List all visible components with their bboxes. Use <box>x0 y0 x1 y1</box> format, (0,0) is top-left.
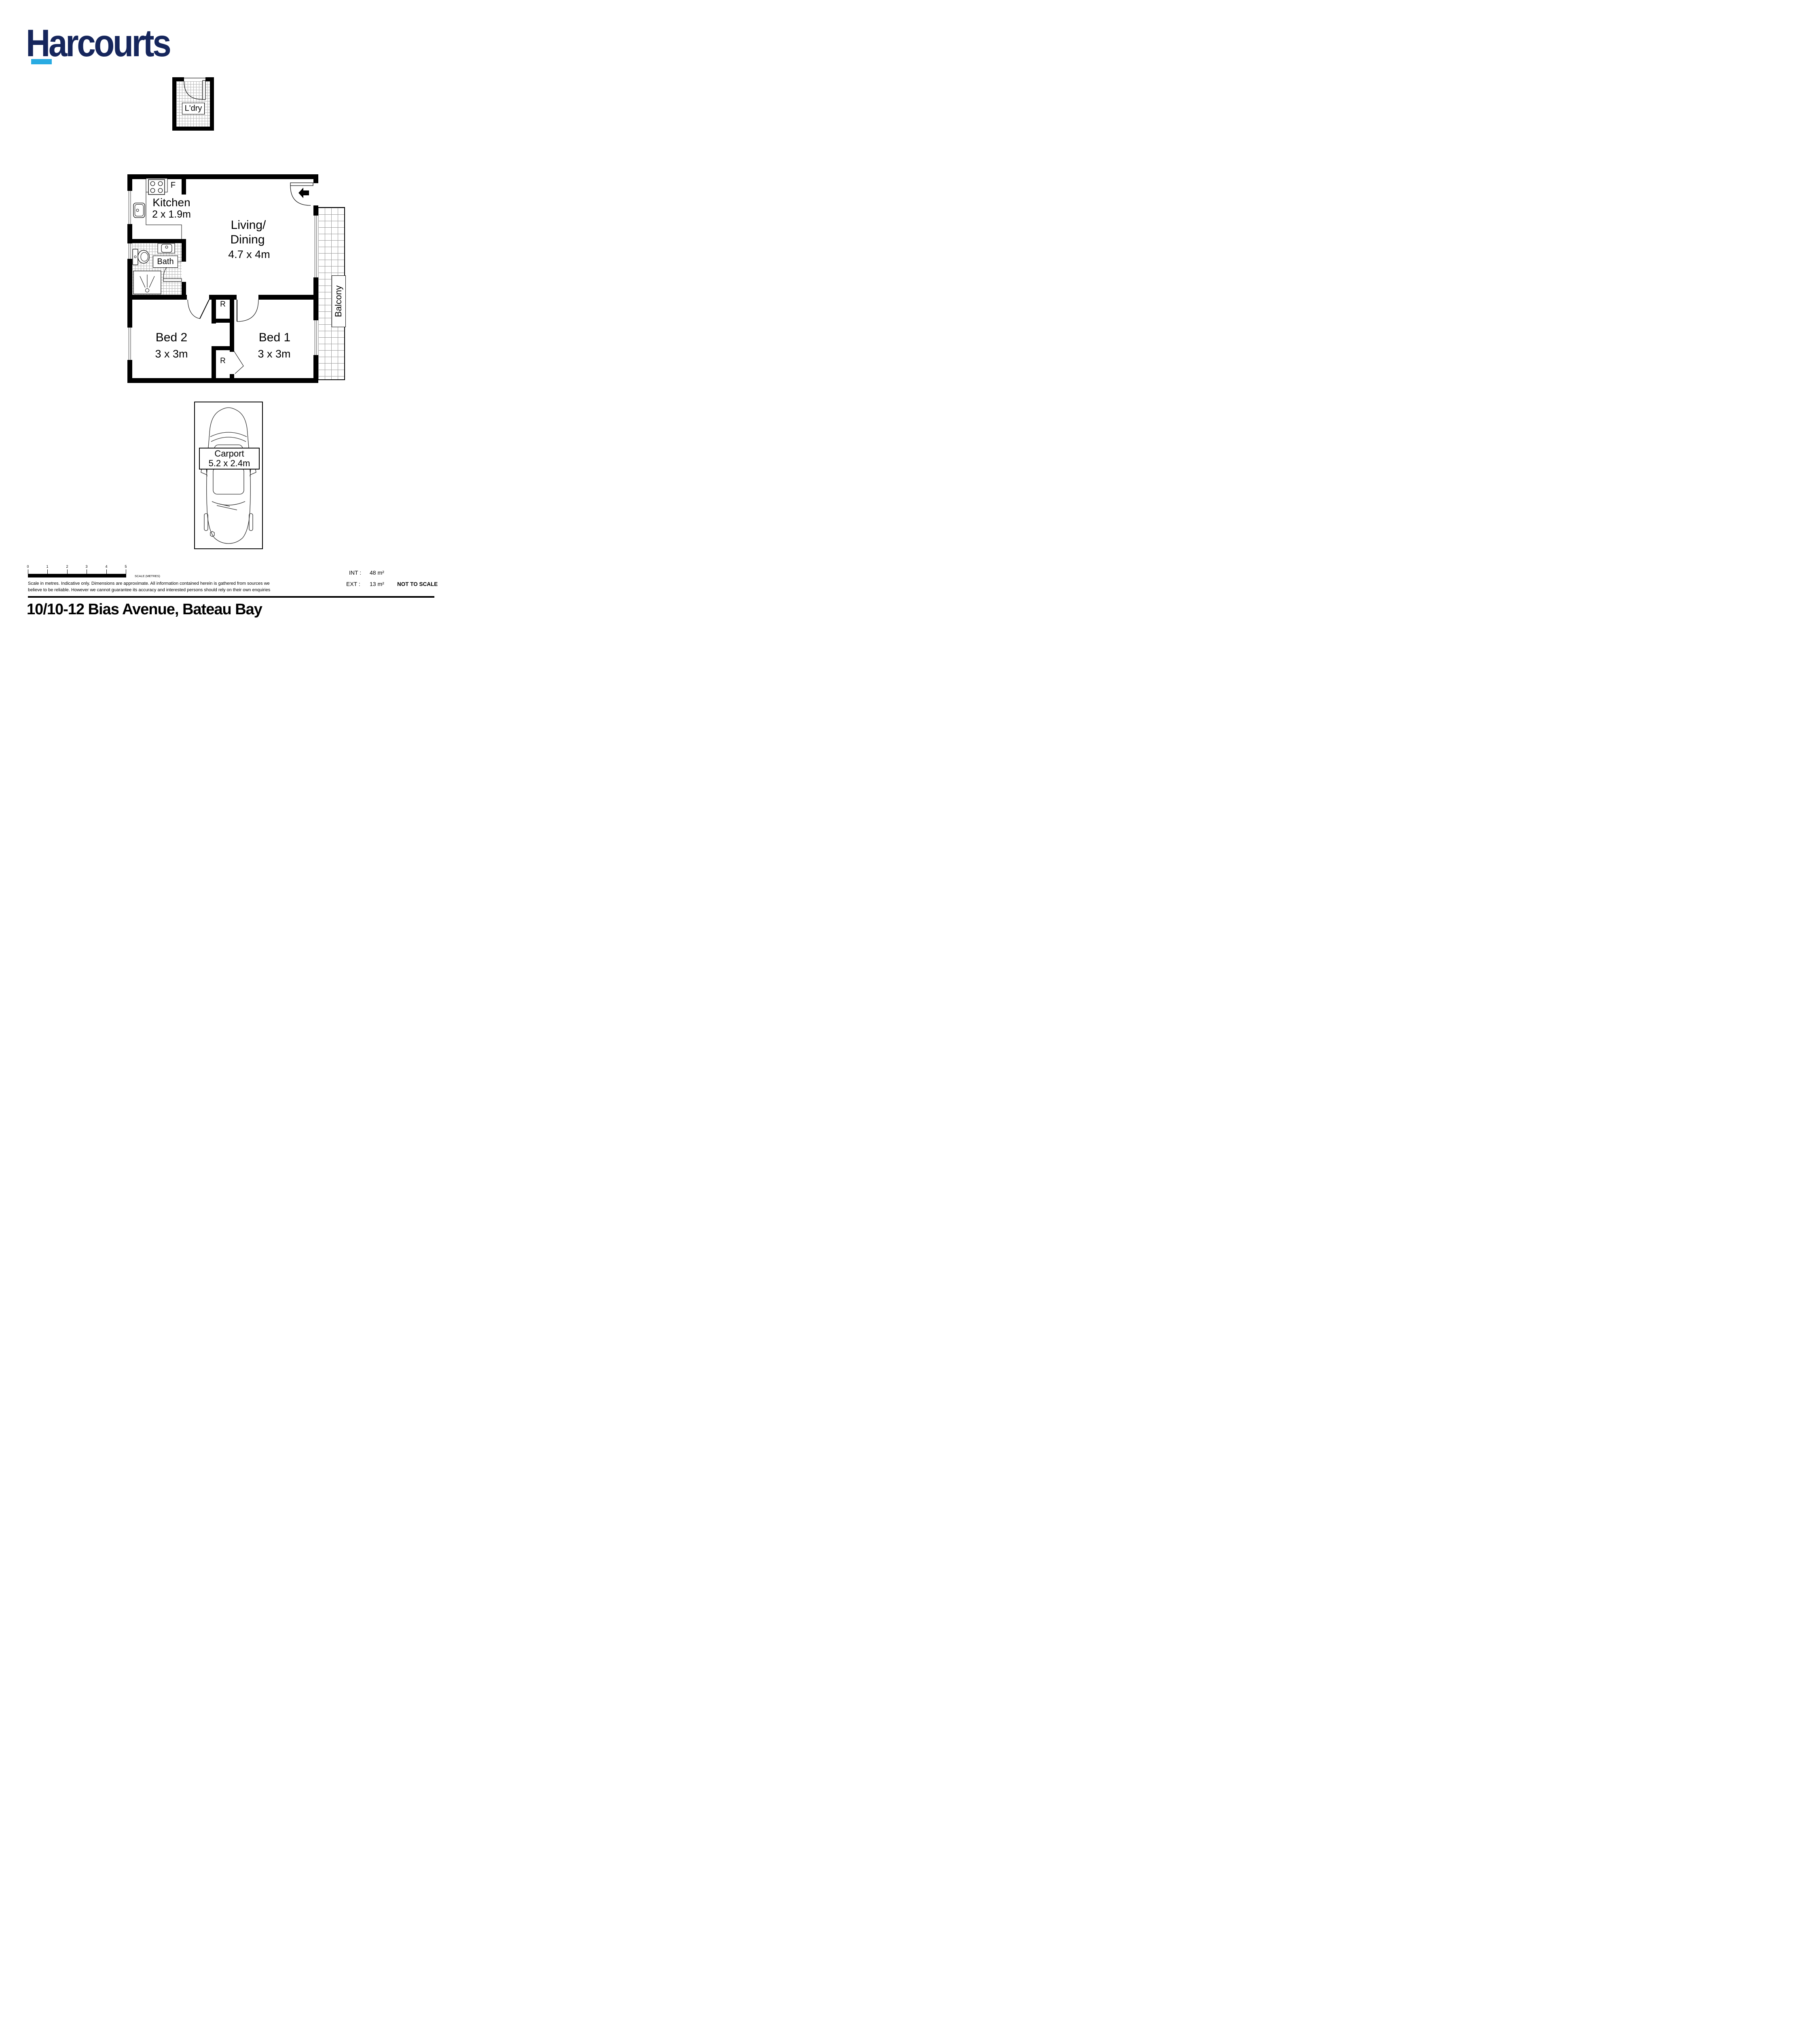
robe-wall <box>230 374 234 378</box>
scale-tickmark <box>67 569 68 574</box>
bed1-label: Bed 1 <box>259 331 290 345</box>
ext-value: 13 m² <box>370 581 384 587</box>
robe-wall <box>216 346 230 350</box>
scale-tickmark <box>47 569 48 574</box>
harcourts-logo: Harcourts <box>26 24 169 63</box>
balcony-label-text: Balcony <box>334 286 344 317</box>
scale-tick-0: 0 <box>27 565 29 569</box>
bed1-dims: 3 x 3m <box>258 348 290 360</box>
scale-tick-1: 1 <box>46 565 48 569</box>
wall-segment <box>127 174 132 191</box>
wall-segment <box>132 295 187 300</box>
scale-tickmark <box>106 569 107 574</box>
scale-bar <box>28 574 126 577</box>
robe-wall <box>212 346 216 378</box>
wall-segment <box>313 277 318 320</box>
carport-dims-text: 5.2 x 2.4m <box>209 459 250 468</box>
stove-burners-icon <box>150 182 162 192</box>
robe-door-leaf <box>234 351 243 374</box>
ext-label: EXT : <box>346 581 360 587</box>
logo-underline <box>31 59 52 64</box>
wall-segment <box>172 77 176 131</box>
kitchen-sink-icon <box>133 203 145 218</box>
kitchen-dims: 2 x 1.9m <box>152 209 191 220</box>
robe-label-top: R <box>220 300 226 309</box>
scale-tickmark <box>126 569 126 574</box>
floorplan-page: Harcourts L'dry <box>0 0 455 643</box>
wall-segment <box>258 295 313 300</box>
bed2-label: Bed 2 <box>156 331 187 345</box>
entry-door-arc <box>290 186 311 205</box>
not-to-scale-label: NOT TO SCALE <box>397 581 438 587</box>
scale-units-label: SCALE (METRES) <box>135 574 160 578</box>
bath-label-text: Bath <box>157 257 174 266</box>
carport-label: Carport 5.2 x 2.4m <box>199 448 260 470</box>
int-label: INT : <box>349 569 361 576</box>
bed2-door-leaf <box>200 300 209 319</box>
stove-icon <box>148 180 165 195</box>
disclaimer-line1: Scale in metres. Indicative only. Dimens… <box>28 581 270 586</box>
entry-door-leaf <box>290 183 313 186</box>
kitchen-sink-drain <box>136 209 139 212</box>
carport-outline <box>194 402 263 549</box>
bed2-dims: 3 x 3m <box>155 348 188 360</box>
bed1-door-arc <box>237 300 258 321</box>
scale-tickmark <box>28 569 28 574</box>
scale-tick-4: 4 <box>105 565 107 569</box>
living-dims: 4.7 x 4m <box>228 248 270 261</box>
robe-wall <box>230 300 234 352</box>
disclaimer-line2: believe to be reliable. However we canno… <box>28 588 270 592</box>
wall-segment <box>209 295 237 300</box>
wall-segment <box>132 239 186 243</box>
int-value: 48 m² <box>370 569 384 576</box>
living-label-line1: Living/ <box>231 218 266 232</box>
wall-segment <box>313 205 318 216</box>
kitchen-sink-inner <box>135 205 144 216</box>
kitchen-bench <box>146 178 167 192</box>
bed2-door-arc <box>188 300 200 319</box>
wall-segment <box>172 127 214 131</box>
wall-segment <box>182 179 186 195</box>
bath-floor <box>132 243 182 295</box>
robe-wall <box>212 300 216 324</box>
living-label-line2: Dining <box>230 233 265 247</box>
laundry-label: L'dry <box>182 103 205 114</box>
balcony-label: Balcony <box>332 275 346 327</box>
laundry-label-text: L'dry <box>185 104 202 113</box>
entry-arrow-icon <box>298 188 309 198</box>
bath-label: Bath <box>153 256 178 268</box>
carport-label-text: Carport <box>214 449 244 459</box>
fridge-label: F <box>171 181 176 190</box>
address: 10/10-12 Bias Avenue, Bateau Bay <box>27 601 262 618</box>
footer-divider <box>28 596 434 598</box>
kitchen-label: Kitchen <box>152 196 190 209</box>
wall-segment <box>313 174 318 183</box>
scale-tick-3: 3 <box>85 565 87 569</box>
scale-tick-2: 2 <box>66 565 68 569</box>
wall-segment <box>127 224 132 243</box>
robe-wall <box>216 319 230 323</box>
wall-segment <box>210 77 214 131</box>
robe-label-bottom: R <box>220 357 226 366</box>
wall-segment <box>127 259 132 328</box>
scale-tick-5: 5 <box>125 565 127 569</box>
scale-tickmark <box>87 569 87 574</box>
wall-segment <box>313 355 318 383</box>
wall-segment <box>127 360 132 383</box>
wall-segment <box>127 378 318 383</box>
wall-segment <box>182 239 186 262</box>
wall-segment <box>127 174 318 179</box>
